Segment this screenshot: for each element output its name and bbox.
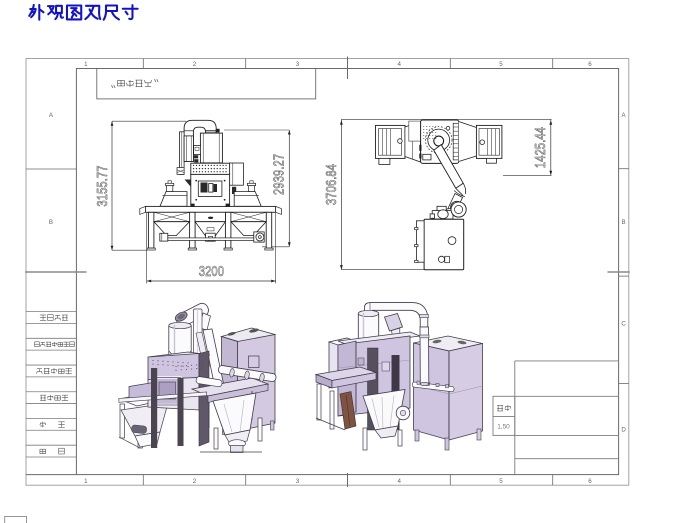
- svg-text:5: 5: [499, 61, 503, 68]
- svg-text:1425.44: 1425.44: [531, 127, 548, 168]
- svg-text:3200: 3200: [199, 262, 224, 279]
- svg-text:D: D: [621, 426, 626, 433]
- svg-text:A: A: [49, 112, 54, 119]
- svg-text:1: 1: [84, 61, 88, 68]
- svg-text:3155.77: 3155.77: [93, 165, 110, 206]
- svg-text:1: 1: [84, 478, 88, 485]
- svg-text:C: C: [621, 320, 626, 327]
- svg-text:6: 6: [588, 478, 592, 485]
- svg-text:6: 6: [588, 61, 592, 68]
- svg-text:4: 4: [397, 61, 401, 68]
- svg-text:3: 3: [296, 478, 300, 485]
- svg-text:2: 2: [193, 61, 197, 68]
- svg-text:B: B: [49, 219, 53, 226]
- svg-text:2939.27: 2939.27: [270, 154, 287, 195]
- svg-text:4: 4: [397, 478, 401, 485]
- svg-text:1,50: 1,50: [497, 423, 510, 430]
- svg-text:2: 2: [193, 478, 197, 485]
- svg-text:3: 3: [296, 61, 300, 68]
- svg-text:A: A: [622, 112, 627, 119]
- svg-text:5: 5: [499, 478, 503, 485]
- svg-text:B: B: [622, 219, 626, 226]
- svg-text:3706.84: 3706.84: [322, 164, 339, 205]
